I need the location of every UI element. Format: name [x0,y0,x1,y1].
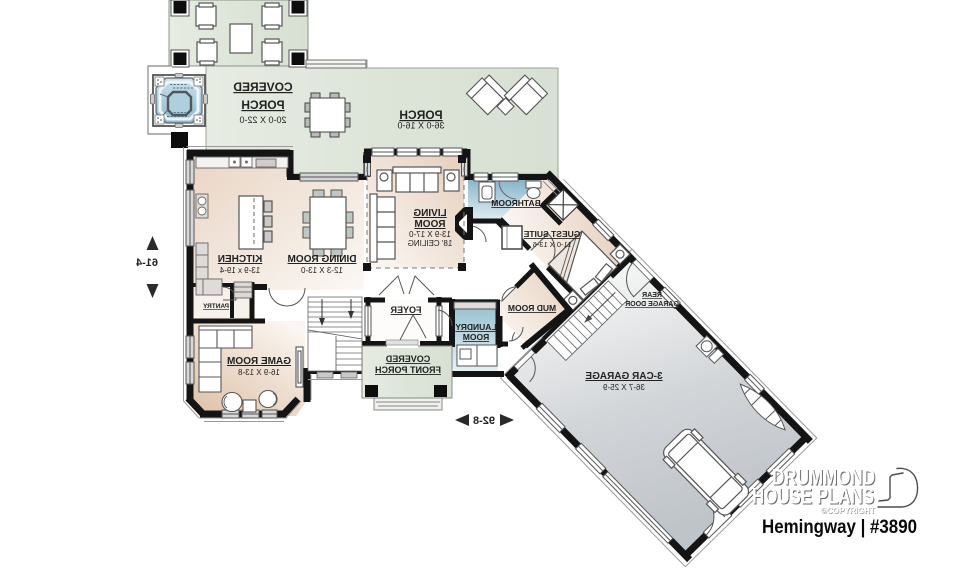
svg-text:92-8: 92-8 [473,415,495,427]
svg-text:12-3 X 13-0: 12-3 X 13-0 [301,266,343,275]
svg-text:3-CAR GARAGE: 3-CAR GARAGE [585,371,663,382]
svg-text:36-0 X 16-0: 36-0 X 16-0 [397,121,444,131]
svg-text:18' CEILING: 18' CEILING [408,239,453,248]
svg-text:36-7 X 25-9: 36-7 X 25-9 [603,383,645,392]
svg-text:20-0 X 22-0: 20-0 X 22-0 [239,115,286,125]
svg-text:GUEST SUITE: GUEST SUITE [523,229,580,239]
svg-text:LAUNDRY: LAUNDRY [455,322,497,332]
svg-text:FOYER: FOYER [390,305,422,315]
svg-text:GAME ROOM: GAME ROOM [227,356,291,367]
svg-text:PORCH: PORCH [241,98,284,112]
svg-text:13-9 x 19-4: 13-9 x 19-4 [219,266,260,275]
svg-text:ROOM: ROOM [414,219,445,230]
svg-text:DINING ROOM: DINING ROOM [288,254,357,265]
svg-text:PANTRY: PANTRY [202,303,229,310]
svg-text:COVERED: COVERED [385,354,430,364]
svg-text:61-4: 61-4 [135,257,158,269]
svg-text:13-9 X 17-0: 13-9 X 17-0 [409,230,451,239]
svg-text:16-9 X 13-8: 16-9 X 13-8 [238,368,280,377]
svg-text:MUD ROOM: MUD ROOM [508,303,556,313]
svg-text:COVERED: COVERED [233,80,293,94]
svg-text:Hemingway | #3890: Hemingway | #3890 [762,516,917,538]
svg-text:LIVING: LIVING [413,208,447,219]
svg-text:BATHROOM: BATHROOM [491,198,540,208]
svg-text:KITCHEN: KITCHEN [218,254,262,265]
svg-text:11-0 X 13-6: 11-0 X 13-6 [533,240,572,249]
svg-text:REAR: REAR [642,292,662,299]
svg-text:GARAGE DOOR: GARAGE DOOR [625,301,679,308]
svg-text:ROOM: ROOM [463,332,489,342]
svg-text:FRONT PORCH: FRONT PORCH [375,365,441,375]
svg-text:HOUSE PLANS: HOUSE PLANS [752,484,874,509]
